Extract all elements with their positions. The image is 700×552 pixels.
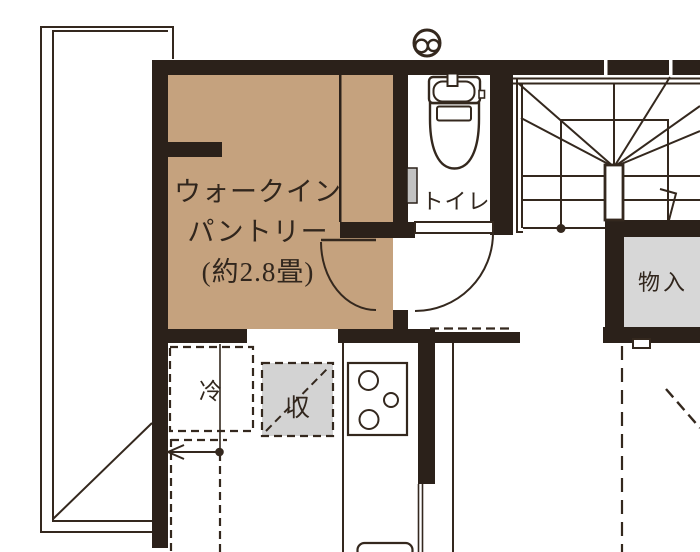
toilet-button (479, 91, 485, 99)
wall-pantry-bottom (152, 329, 247, 343)
pipe-space-symbol (414, 30, 440, 56)
toilet-door-swing-arc (415, 233, 493, 311)
wall-kitchen-vertical (418, 329, 435, 484)
roof-valley-line (53, 423, 152, 519)
pantry-label-size: (約2.8畳) (158, 252, 358, 292)
toilet-seat-hinge (437, 107, 471, 121)
window-tick-left (604, 60, 608, 75)
wall-hall-horizontal (433, 332, 520, 343)
wall-notch-marker (633, 339, 650, 348)
stair-newel-post (605, 165, 623, 220)
pantry-label-line2: パントリー (158, 212, 358, 252)
sink (358, 543, 413, 552)
toilet-fixture (429, 75, 485, 169)
pipe-space-inner-circle (428, 40, 439, 51)
window-tick-right (669, 60, 673, 75)
kitchen-storage-label: 収 (272, 388, 324, 424)
wall-pantry-stub (168, 142, 222, 157)
toilet-door-leaf (415, 222, 493, 233)
corner-closet-diagonal (666, 389, 700, 428)
pantry-label: ウォークイン パントリー (約2.8畳) (158, 172, 358, 292)
refrigerator-label: 冷 (186, 372, 236, 406)
pipe-space-inner-circle (415, 40, 428, 53)
stair-winder-line (614, 77, 670, 167)
floor-plan: ウォークイン パントリー (約2.8畳) トイレ 物入 冷 収 (0, 0, 700, 552)
roof-inner-line (53, 31, 168, 521)
staircase (513, 77, 700, 233)
toilet-faucet-slot-fill (448, 75, 458, 87)
toilet-label: トイレ (406, 184, 506, 216)
pantry-label-line1: ウォークイン (158, 172, 358, 212)
stair-arrow-dot (557, 224, 566, 233)
wall-left (152, 60, 168, 548)
wall-closet-left (605, 220, 624, 343)
dimension-arrow-dot (215, 448, 224, 457)
wall-top (152, 60, 700, 75)
closet-label: 物入 (623, 265, 700, 297)
wall-closet-bottom (603, 327, 700, 343)
